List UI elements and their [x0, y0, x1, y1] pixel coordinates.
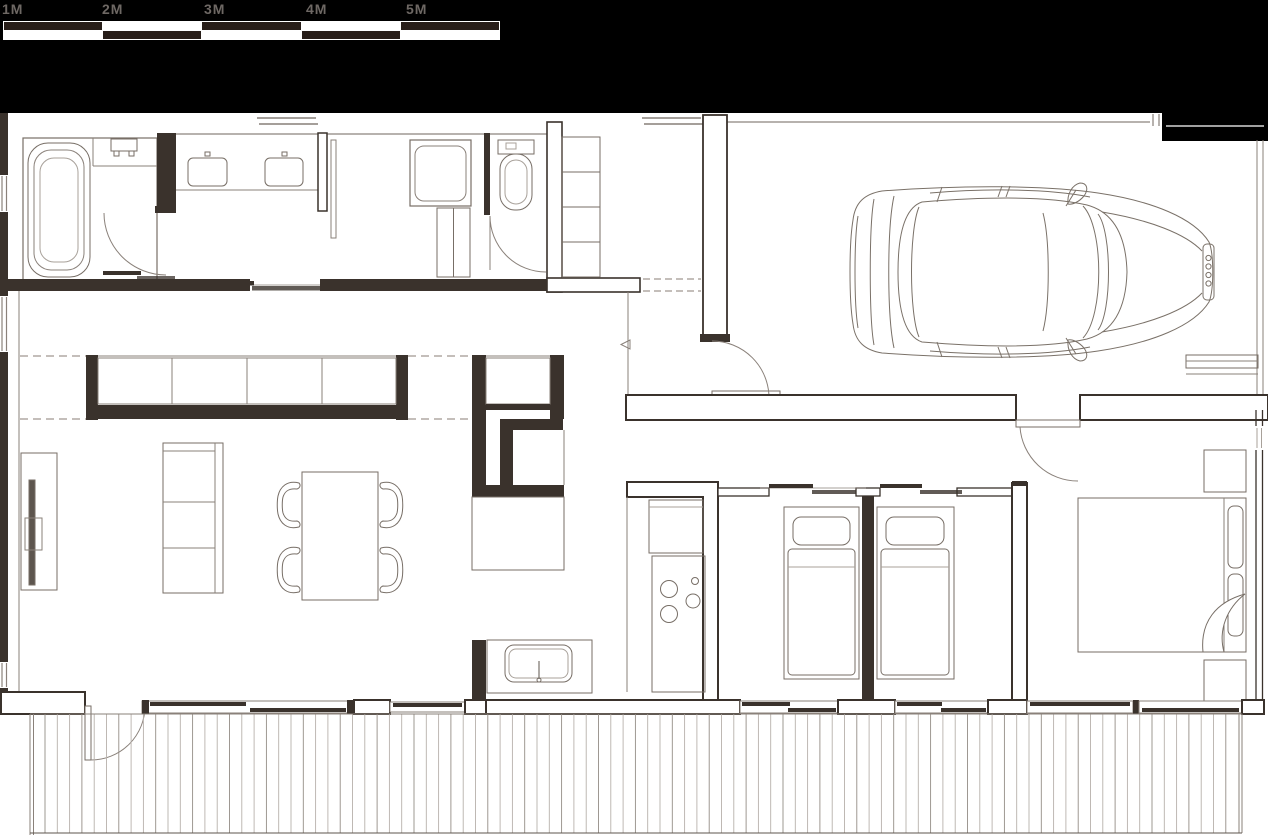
bathroom-wall — [157, 133, 176, 213]
top-wall-window-washroom — [255, 113, 318, 129]
floor-plan-drawing — [0, 0, 1268, 836]
living-terrace-window — [142, 700, 354, 714]
south-corner-wall — [1, 692, 85, 714]
garage-corner-wall — [1162, 113, 1268, 141]
pocket-door-wall — [318, 133, 327, 211]
garage-top-window — [1150, 113, 1162, 127]
kitchen-south-wall — [486, 700, 740, 714]
window-bench-large — [86, 355, 408, 420]
dining-window — [390, 702, 465, 712]
kids-middle-wall — [862, 496, 874, 700]
kids2-window — [895, 701, 988, 713]
entrance-door-window — [640, 113, 703, 129]
tv — [29, 480, 35, 585]
kids1-window — [740, 701, 838, 713]
floor-plan-page: 1M 2M 3M 4M 5M — [0, 0, 1268, 836]
window-bench-small — [472, 355, 564, 419]
master-west-wall — [1012, 483, 1027, 714]
master-window-2 — [1139, 701, 1242, 713]
garage-left-wall — [703, 115, 727, 341]
master-window-1 — [1027, 701, 1133, 713]
